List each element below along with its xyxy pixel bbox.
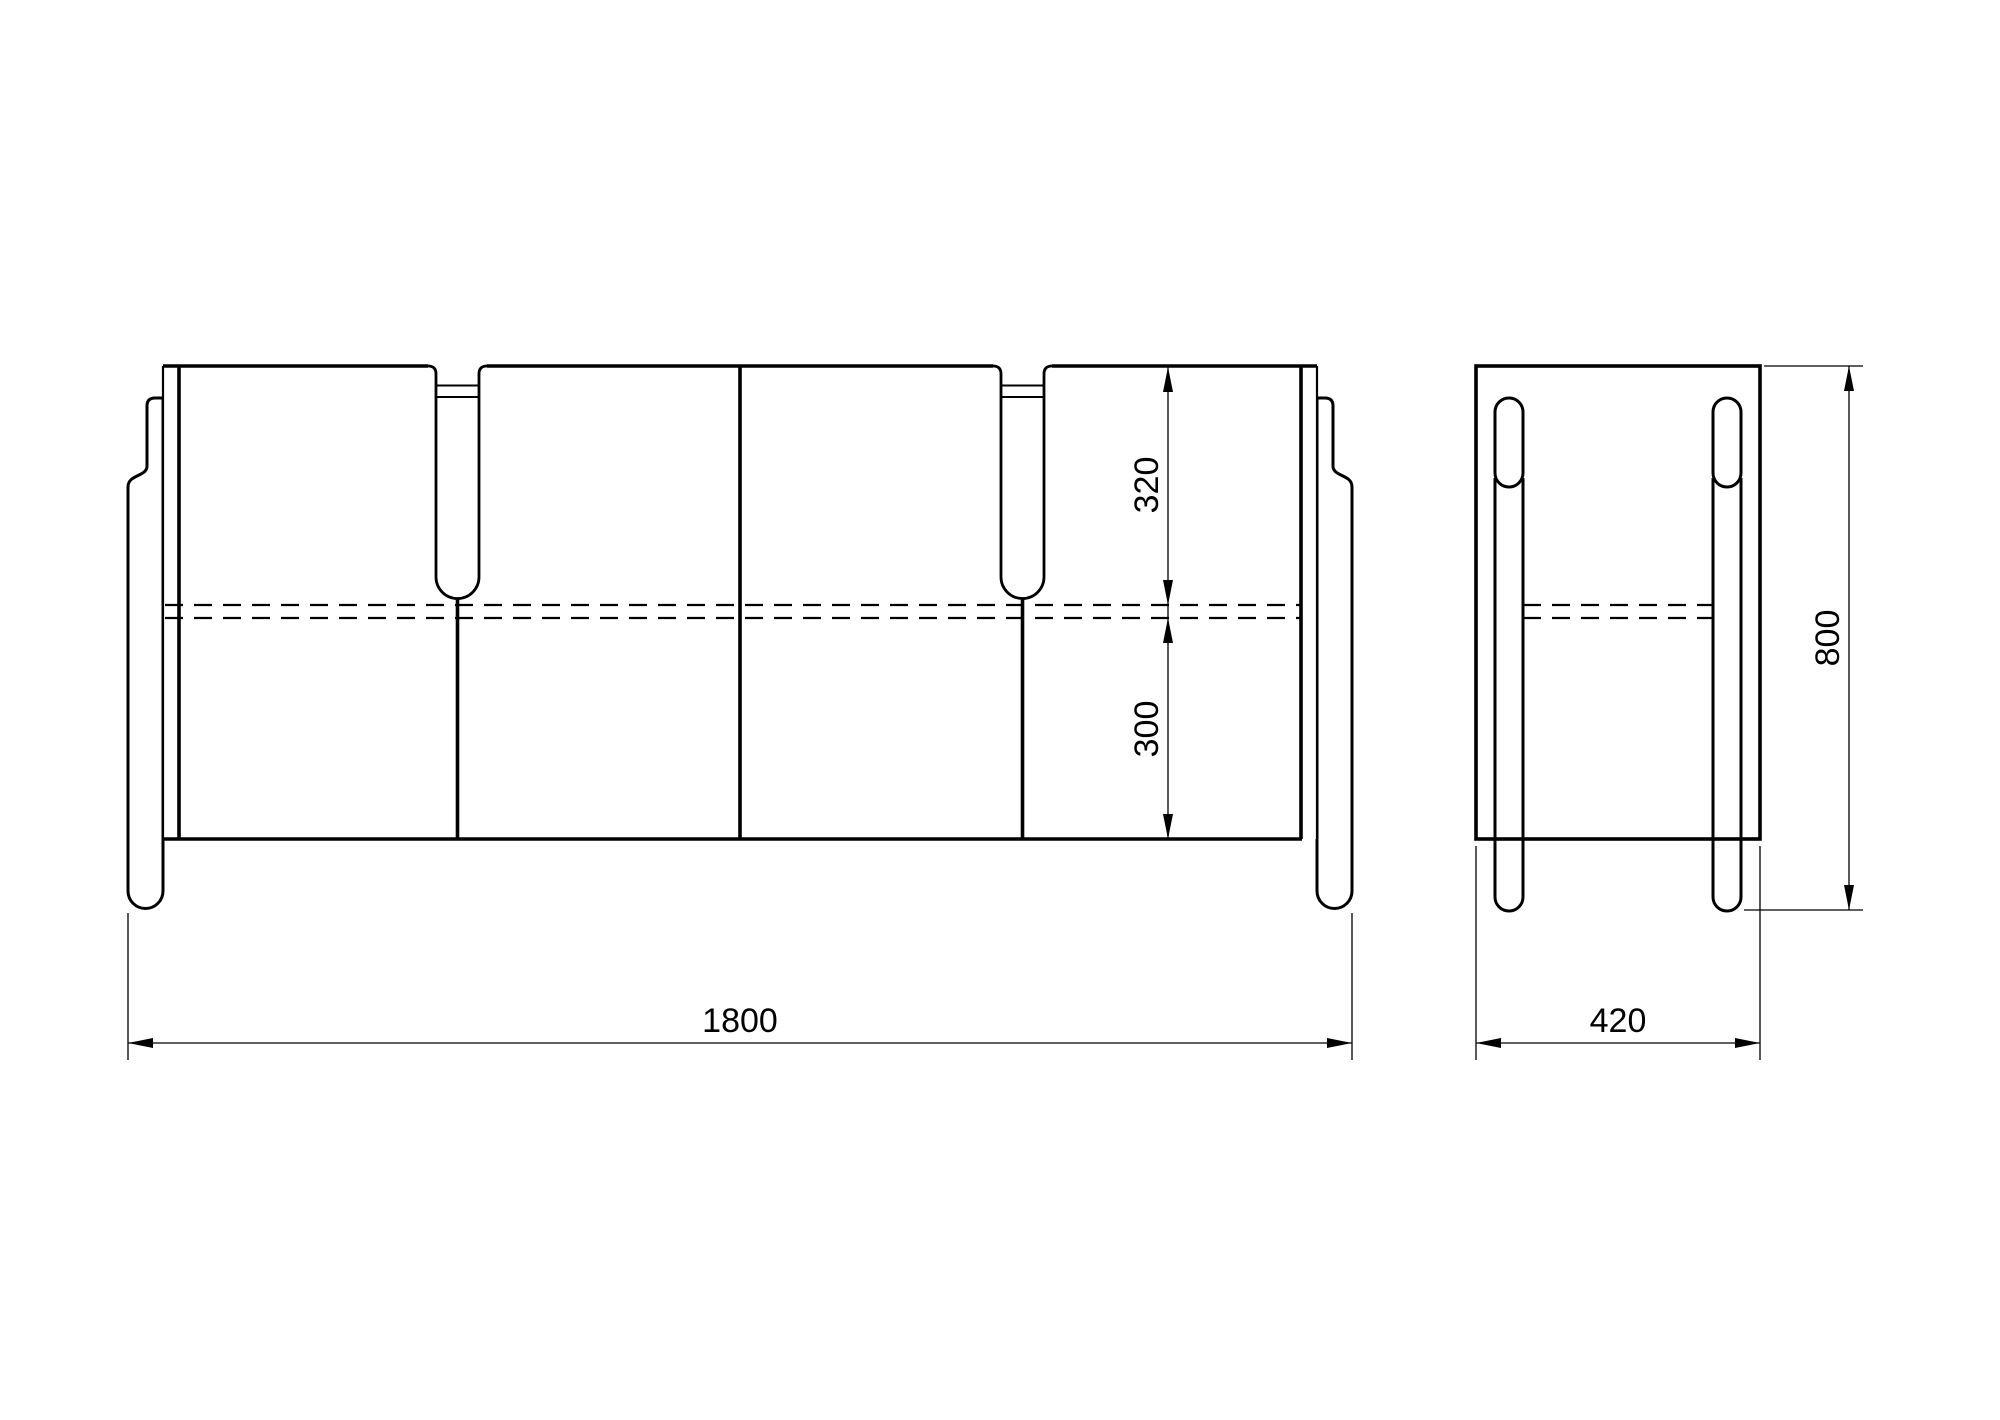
side-leg-back-shaft [1713,478,1741,911]
dim-label-overall-depth: 420 [1590,1002,1647,1040]
shelf-dashed-lines-side [1523,605,1713,618]
front-leg-left [128,398,163,909]
side-leg-back-neck [1713,398,1741,487]
drawing-page: 320 300 1800 420 800 [0,0,2000,1420]
arrow-left-icon [128,1038,153,1048]
front-leg-right [1317,398,1352,909]
arrow-right-icon [1327,1038,1352,1048]
dim-label-overall-width: 1800 [702,1002,778,1040]
technical-drawing-canvas: 320 300 1800 420 800 [0,0,2000,1420]
side-leg-front-neck [1495,398,1523,487]
dim-label-shelf-to-bottom: 300 [1128,701,1166,758]
arrow-up-icon [1844,366,1854,391]
arrow-right-icon [1735,1038,1760,1048]
side-view [1476,366,1760,911]
dimension-1800: 1800 [128,913,1352,1060]
dim-label-top-to-shelf: 320 [1128,457,1166,514]
arrow-down-icon [1844,885,1854,910]
side-leg-front-shaft [1495,478,1523,911]
arrow-left-icon [1476,1038,1501,1048]
dimension-800: 800 [1744,366,1863,910]
dim-label-overall-height: 800 [1809,610,1847,667]
